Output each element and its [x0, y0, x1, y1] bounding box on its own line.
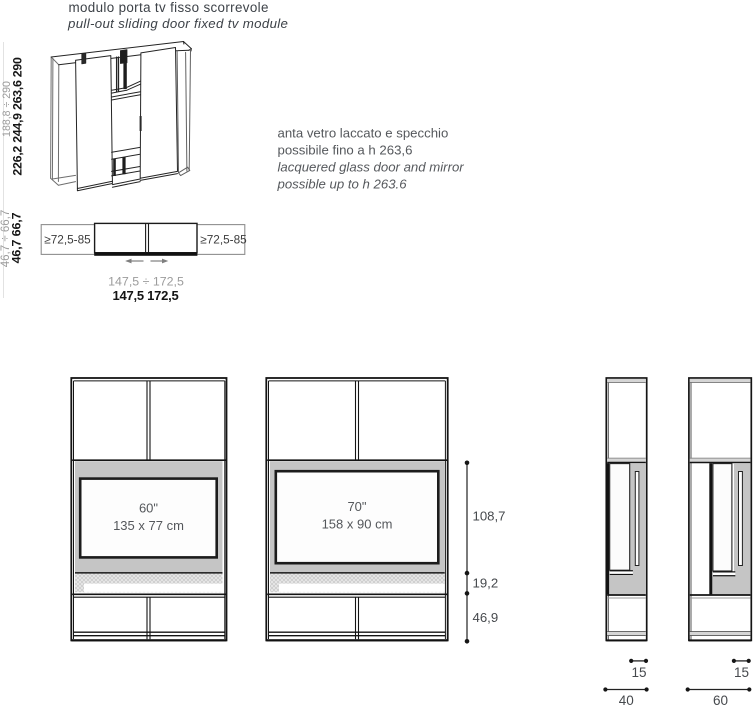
svg-text:46,9: 46,9 — [473, 610, 499, 625]
svg-text:pull-out sliding door fixed tv: pull-out sliding door fixed tv module — [67, 16, 288, 31]
svg-text:anta vetro laccato e specchio: anta vetro laccato e specchio — [278, 126, 449, 141]
svg-text:modulo porta tv fisso scorrevo: modulo porta tv fisso scorrevole — [69, 0, 269, 15]
svg-text:226,2 244,9 263,6 290: 226,2 244,9 263,6 290 — [11, 57, 25, 176]
svg-text:≥72,5-85: ≥72,5-85 — [200, 233, 247, 247]
svg-text:70": 70" — [347, 499, 366, 514]
svg-text:lacquered glass door and mirro: lacquered glass door and mirror — [278, 160, 465, 175]
svg-text:60": 60" — [139, 501, 158, 516]
svg-text:135 x 77 cm: 135 x 77 cm — [113, 518, 184, 533]
svg-text:19,2: 19,2 — [473, 575, 499, 590]
svg-text:15: 15 — [734, 665, 749, 680]
svg-text:60: 60 — [713, 693, 728, 708]
svg-text:108,7: 108,7 — [473, 509, 506, 524]
svg-text:possible up to h 263.6: possible up to h 263.6 — [277, 177, 408, 192]
svg-text:158 x 90 cm: 158 x 90 cm — [322, 517, 393, 532]
svg-text:147,5 172,5: 147,5 172,5 — [113, 288, 179, 303]
svg-text:≥72,5-85: ≥72,5-85 — [44, 233, 91, 247]
svg-text:46,7 66,7: 46,7 66,7 — [10, 212, 24, 263]
svg-text:147,5 ÷ 172,5: 147,5 ÷ 172,5 — [108, 275, 184, 289]
svg-text:40: 40 — [619, 693, 634, 708]
svg-text:possibile fino a h 263,6: possibile fino a h 263,6 — [278, 143, 413, 158]
svg-text:15: 15 — [631, 665, 646, 680]
